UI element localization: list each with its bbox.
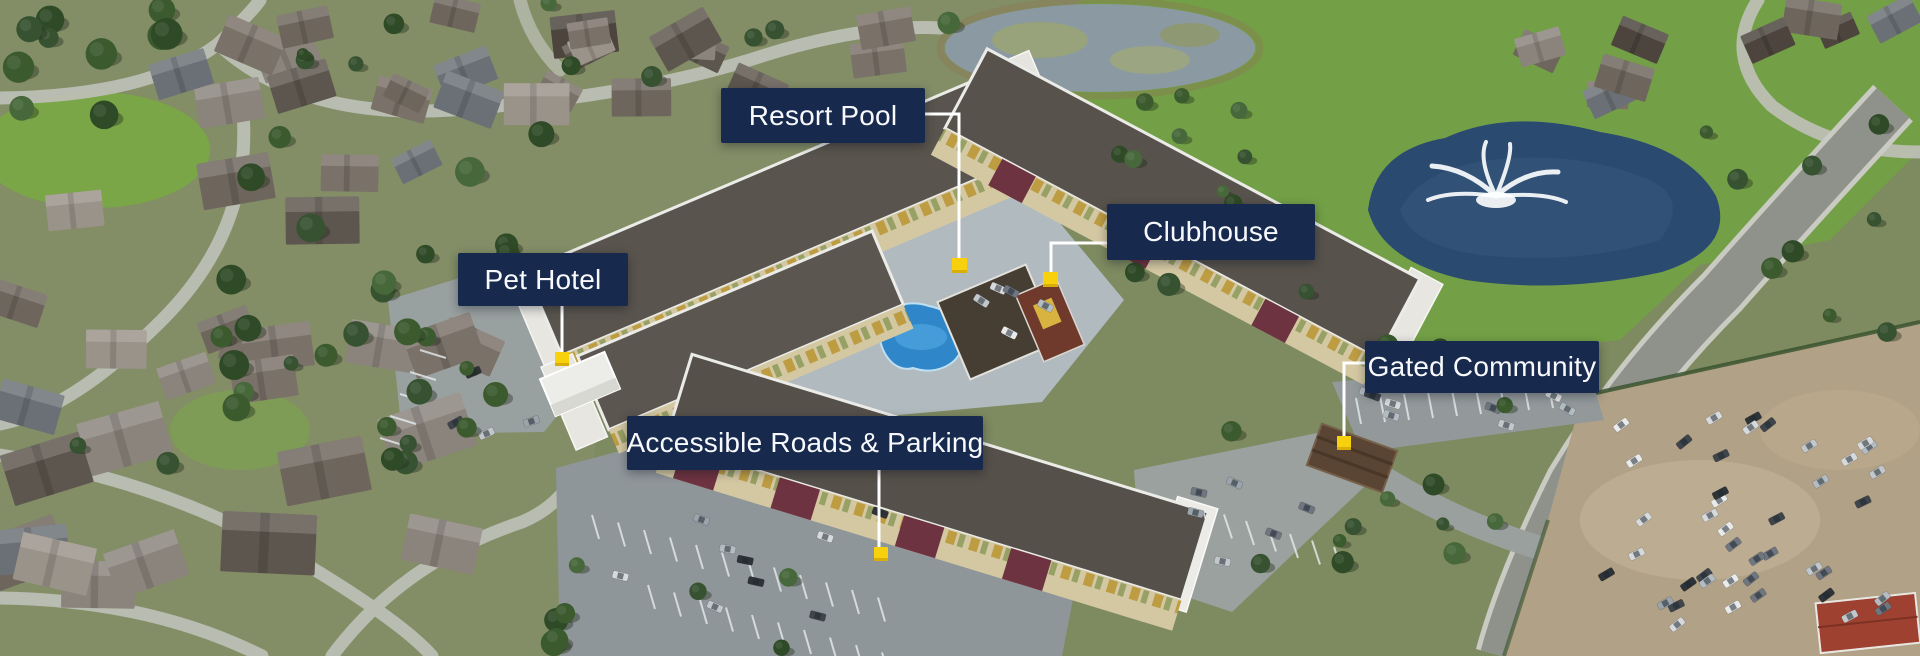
gated-community-marker[interactable] [1337,436,1351,450]
callout-label: Accessible Roads & Parking [627,427,984,459]
resort-aerial-map: Resort Pool Clubhouse Pet Hotel Gated Co… [0,0,1920,656]
clubhouse-marker[interactable] [1043,272,1058,287]
callout-label: Gated Community [1368,351,1597,383]
callout-gated-community[interactable]: Gated Community [1365,341,1599,393]
pet-hotel-marker[interactable] [555,352,569,366]
callout-clubhouse[interactable]: Clubhouse [1107,204,1315,260]
accessible-roads-marker[interactable] [874,547,888,561]
callout-label: Pet Hotel [485,264,602,296]
callout-label: Resort Pool [749,100,898,132]
callout-accessible-roads[interactable]: Accessible Roads & Parking [627,416,983,470]
callout-label: Clubhouse [1143,216,1279,248]
callout-pet-hotel[interactable]: Pet Hotel [458,253,628,306]
callout-resort-pool[interactable]: Resort Pool [721,88,925,143]
aerial-photo-background [0,0,1920,656]
resort-pool-marker[interactable] [952,258,967,273]
